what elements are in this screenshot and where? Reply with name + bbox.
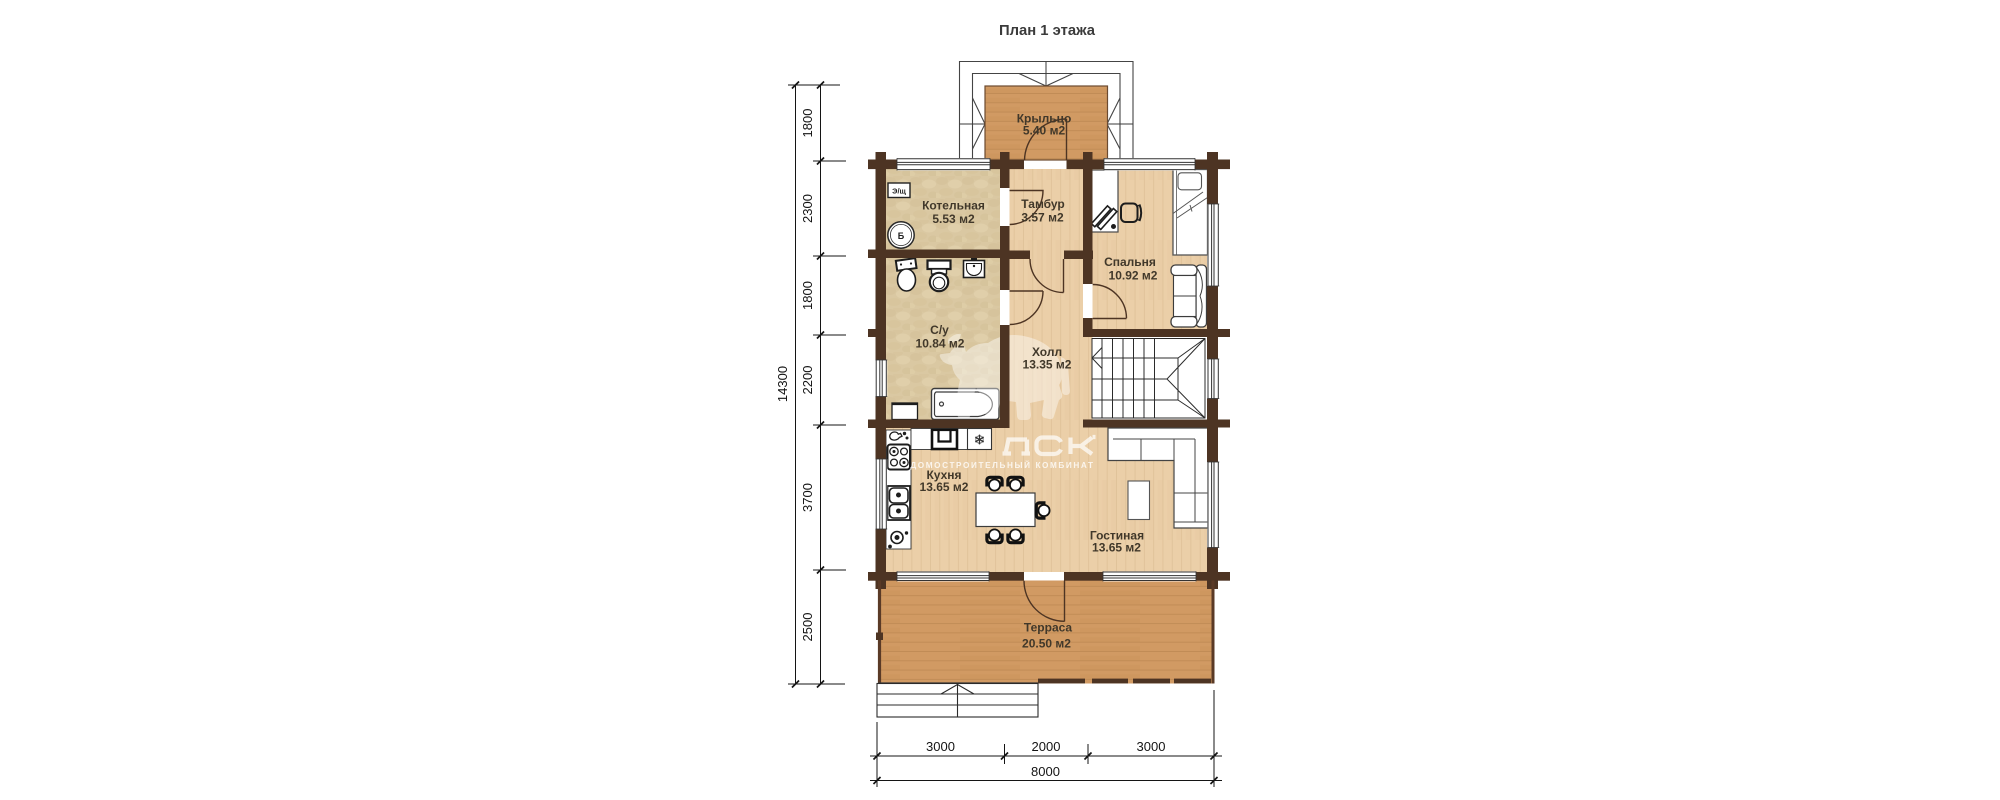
svg-text:3700: 3700 — [800, 483, 815, 512]
svg-text:8000: 8000 — [1031, 764, 1060, 779]
svg-text:2000: 2000 — [1032, 739, 1061, 754]
svg-text:13.65 м2: 13.65 м2 — [1092, 541, 1141, 555]
svg-text:2200: 2200 — [800, 366, 815, 395]
svg-text:3000: 3000 — [1137, 739, 1166, 754]
svg-text:10.84 м2: 10.84 м2 — [916, 337, 965, 351]
svg-text:5.40 м2: 5.40 м2 — [1023, 124, 1066, 138]
svg-text:Спальня: Спальня — [1104, 255, 1156, 269]
svg-text:10.92 м2: 10.92 м2 — [1109, 269, 1158, 283]
svg-text:Тамбур: Тамбур — [1021, 197, 1065, 211]
svg-text:20.50 м2: 20.50 м2 — [1022, 637, 1071, 651]
svg-text:1800: 1800 — [800, 281, 815, 310]
svg-text:Б: Б — [898, 231, 905, 241]
svg-text:3.57 м2: 3.57 м2 — [1021, 211, 1064, 225]
svg-text:13.35 м2: 13.35 м2 — [1023, 358, 1072, 372]
svg-text:План 1 этажа: План 1 этажа — [999, 23, 1096, 39]
svg-text:3000: 3000 — [926, 739, 955, 754]
svg-text:13.65 м2: 13.65 м2 — [920, 480, 969, 494]
svg-text:2300: 2300 — [800, 194, 815, 223]
svg-text:Котельная: Котельная — [922, 199, 985, 213]
svg-text:5.53 м2: 5.53 м2 — [932, 212, 975, 226]
svg-text:С/у: С/у — [930, 323, 949, 337]
svg-text:1800: 1800 — [800, 109, 815, 138]
svg-text:14300: 14300 — [775, 366, 790, 402]
svg-text:Э/щ: Э/щ — [892, 186, 906, 195]
svg-text:Терраса: Терраса — [1024, 621, 1073, 635]
svg-text:2500: 2500 — [800, 613, 815, 642]
